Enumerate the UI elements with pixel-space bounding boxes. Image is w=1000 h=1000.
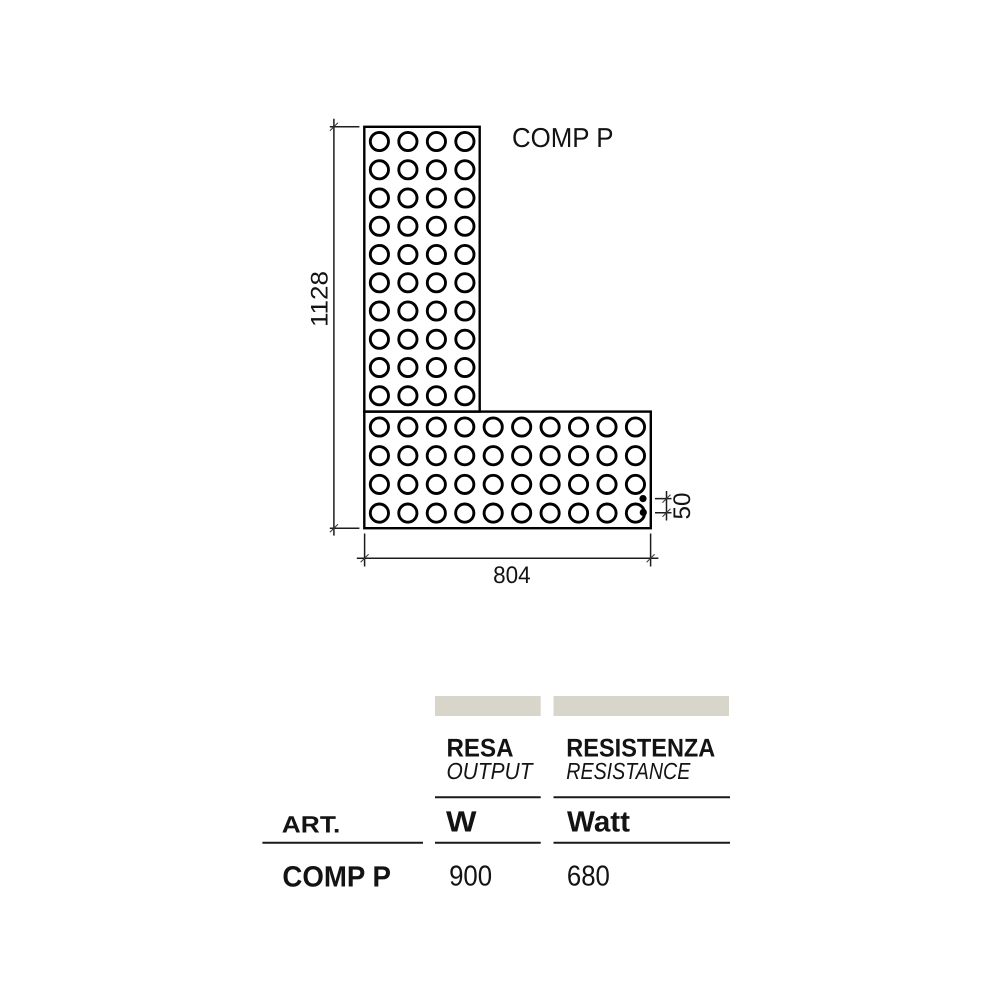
svg-text:ART.: ART. [282,812,341,838]
svg-text:W: W [446,806,477,838]
svg-text:COMP P: COMP P [282,861,391,894]
svg-text:680: 680 [567,861,610,893]
svg-text:RESISTANCE: RESISTANCE [566,758,690,784]
svg-text:OUTPUT: OUTPUT [447,758,535,784]
svg-text:50: 50 [669,493,696,520]
svg-text:COMP P: COMP P [512,122,614,153]
svg-text:804: 804 [493,562,531,589]
svg-text:Watt: Watt [567,806,630,838]
svg-text:900: 900 [449,861,492,893]
svg-text:1128: 1128 [307,271,334,327]
